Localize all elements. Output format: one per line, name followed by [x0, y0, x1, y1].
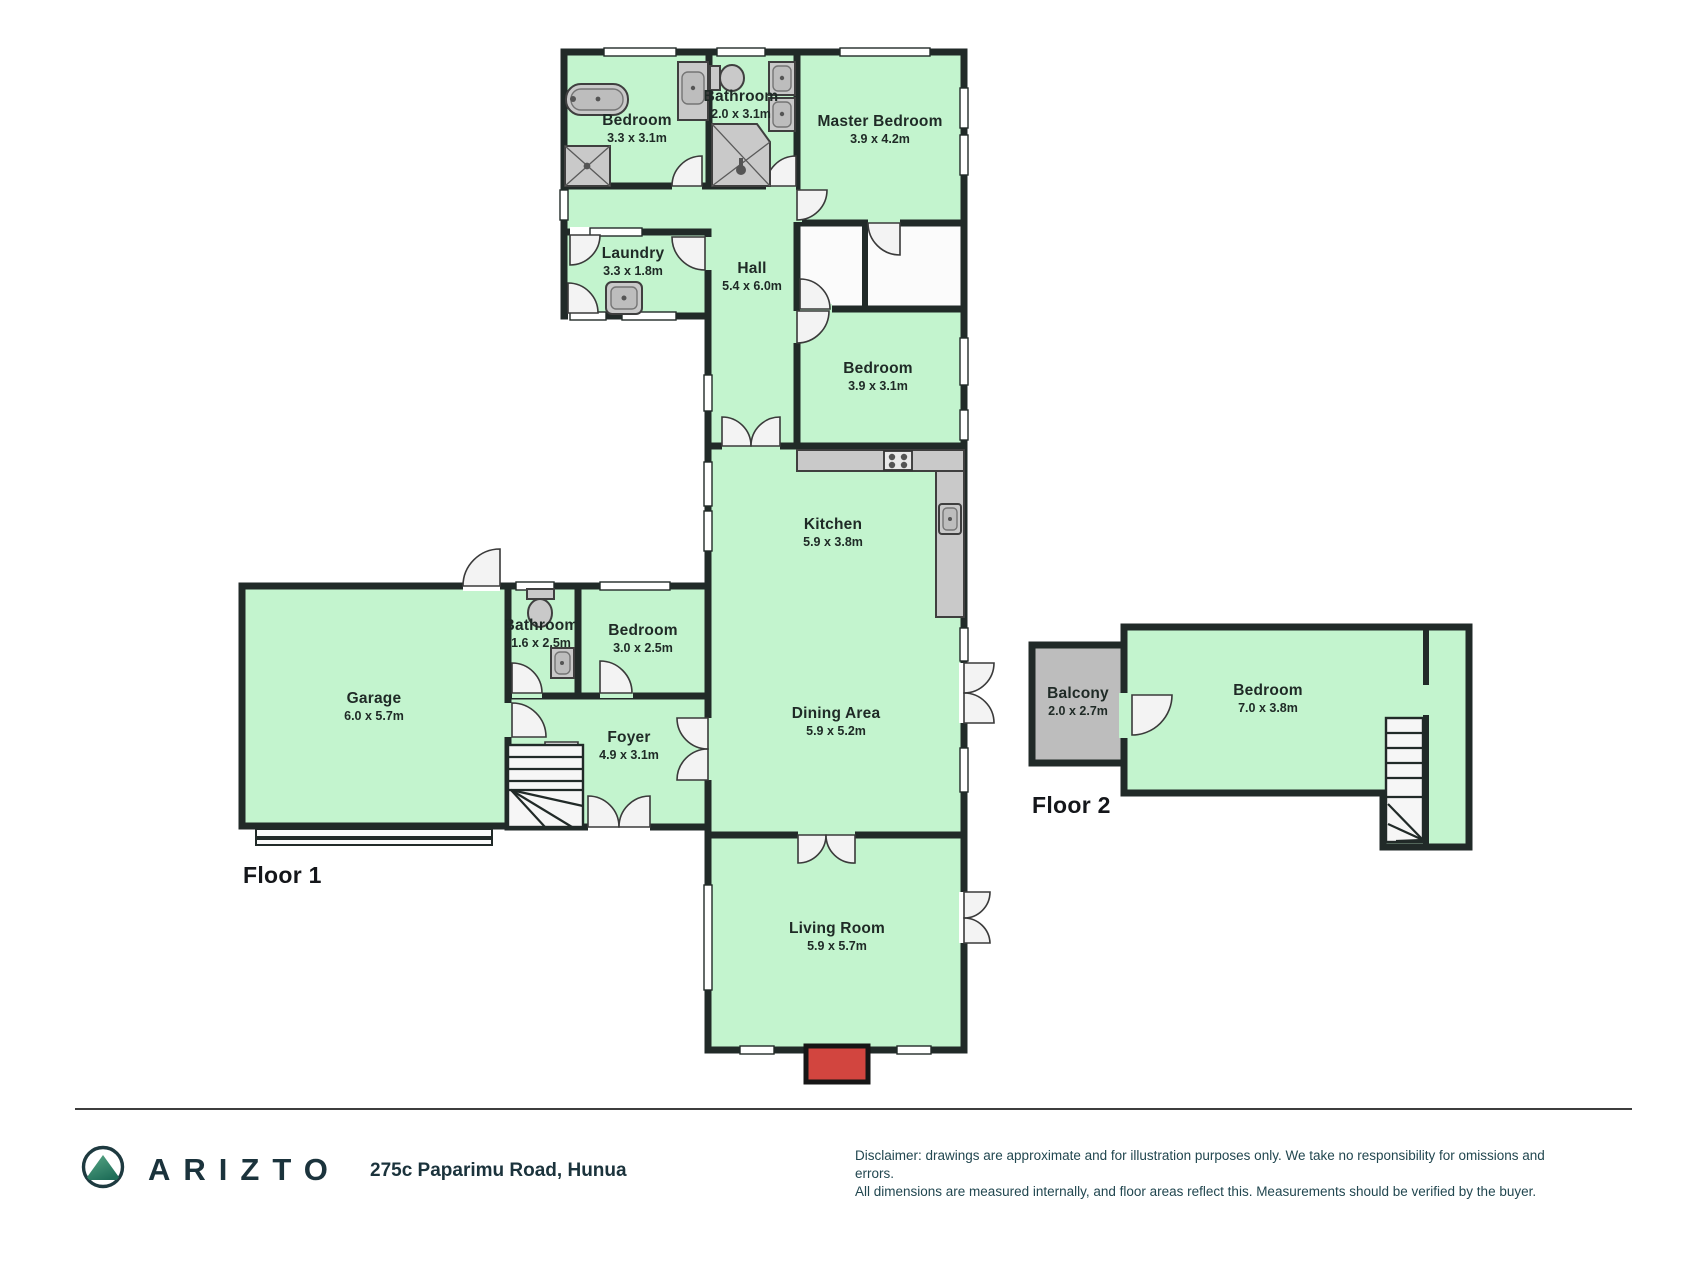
label-living: Living Room 5.9 x 5.7m [789, 920, 885, 953]
label-bathroom-small: Bathroom 1.6 x 2.5m [504, 617, 579, 650]
fireplace [806, 1046, 868, 1082]
floorplan-page: Bedroom 3.3 x 3.1m Bathroom 2.0 x 3.1m M… [0, 0, 1707, 1280]
room-kitchen-dining [708, 446, 964, 835]
property-address: 275c Paparimu Road, Hunua [370, 1160, 627, 1182]
staircase-floor2 [1386, 718, 1423, 842]
label-balcony: Balcony 2.0 x 2.7m [1047, 685, 1109, 718]
label-foyer: Foyer 4.9 x 3.1m [599, 729, 659, 762]
label-garage: Garage 6.0 x 5.7m [344, 690, 404, 723]
arizto-logo-icon [80, 1144, 126, 1190]
label-hall: Hall 5.4 x 6.0m [722, 260, 782, 293]
bathtub [566, 84, 628, 115]
footer-divider [75, 1108, 1632, 1110]
label-bedroom-small: Bedroom 3.0 x 2.5m [608, 622, 677, 655]
label-bathroom-top: Bathroom 2.0 x 3.1m [704, 88, 779, 121]
floor1-label: Floor 1 [243, 862, 322, 889]
balcony-door-opening [1119, 693, 1129, 738]
corner-shower-icon [712, 124, 770, 186]
label-bedroom-top: Bedroom 3.3 x 3.1m [602, 112, 671, 145]
label-bedroom-mid: Bedroom 3.9 x 3.1m [843, 360, 912, 393]
disclaimer-line-2: All dimensions are measured internally, … [855, 1183, 1575, 1201]
label-master-bedroom: Master Bedroom 3.9 x 4.2m [817, 113, 942, 146]
kitchen-sink-icon [939, 504, 961, 534]
label-kitchen: Kitchen 5.9 x 3.8m [803, 516, 863, 549]
shower-icon [565, 146, 610, 186]
disclaimer-text: Disclaimer: drawings are approximate and… [855, 1147, 1575, 1201]
stove-icon [884, 451, 912, 470]
laundry-tub [606, 282, 642, 314]
label-laundry: Laundry 3.3 x 1.8m [602, 245, 665, 278]
disclaimer-line-1: Disclaimer: drawings are approximate and… [855, 1147, 1575, 1183]
label-dining: Dining Area 5.9 x 5.2m [792, 705, 881, 738]
floor2-label: Floor 2 [1032, 792, 1111, 819]
label-bedroom-f2: Bedroom 7.0 x 3.8m [1233, 682, 1302, 715]
sink-small [551, 648, 574, 678]
brand-wordmark: ARIZTO [148, 1152, 341, 1188]
garage-door [256, 829, 492, 845]
staircase-floor1 [508, 745, 583, 827]
